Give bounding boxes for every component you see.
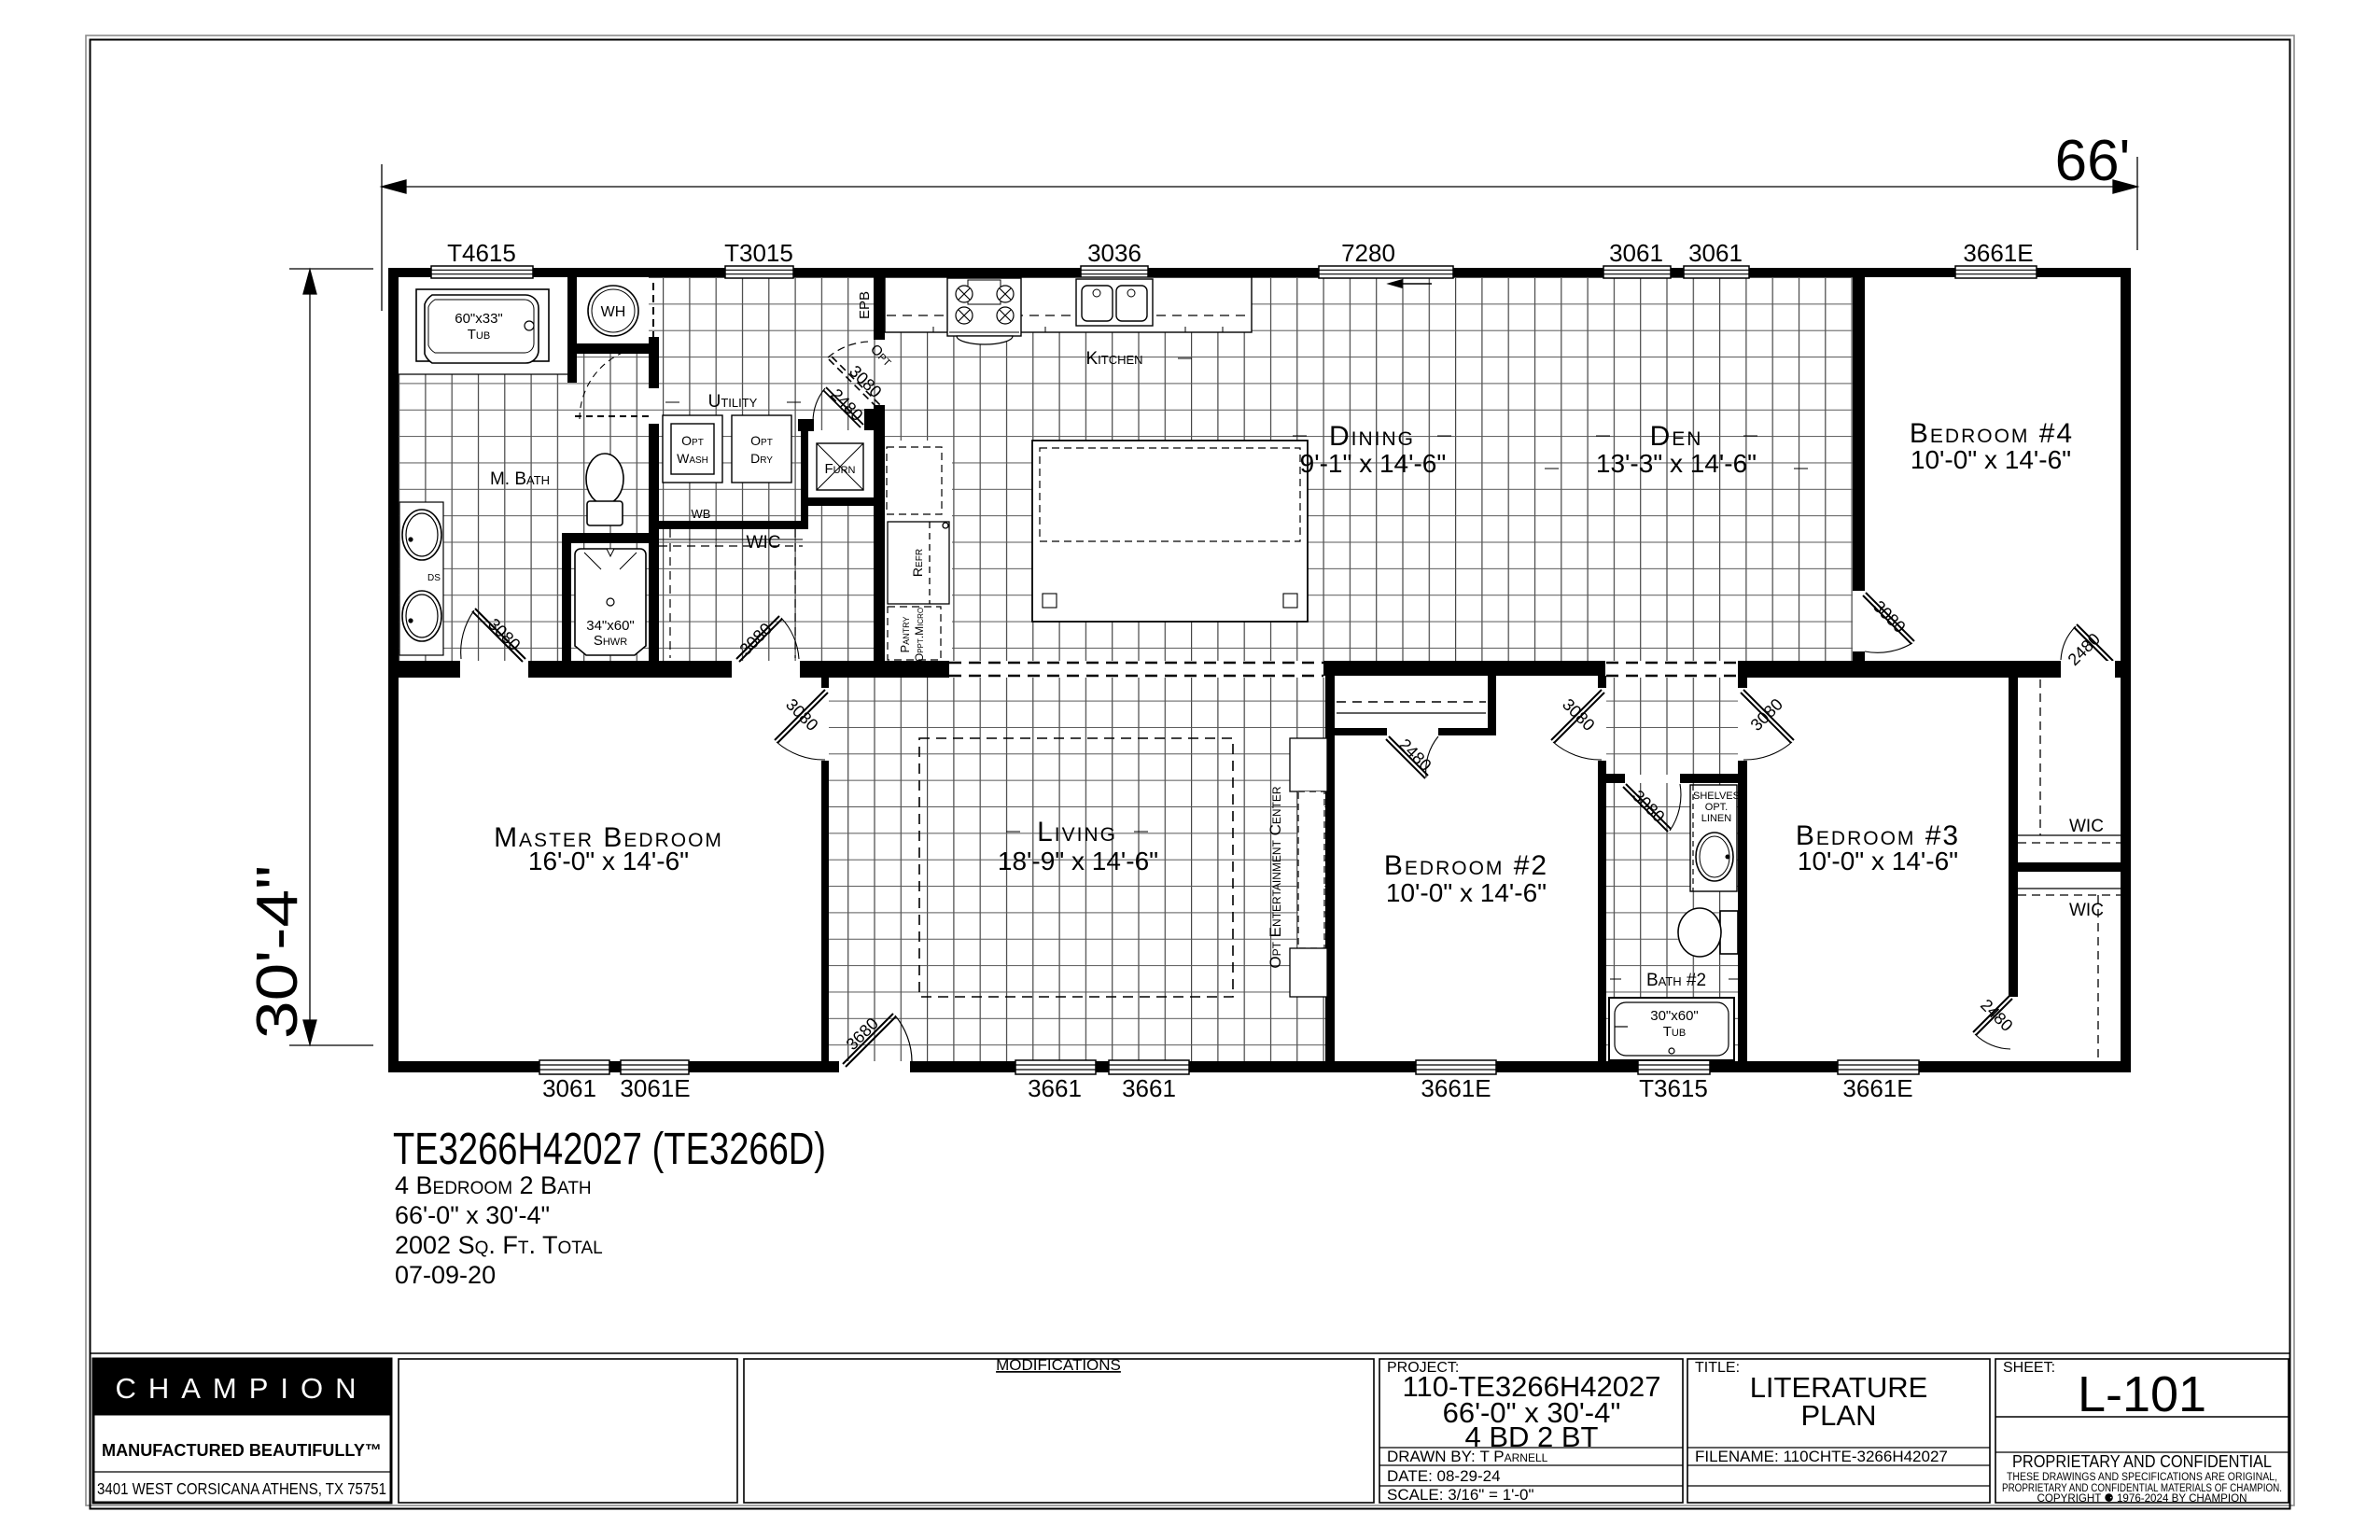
svg-text:Dry: Dry <box>750 451 773 466</box>
svg-text:9'-1" x 14'-6": 9'-1" x 14'-6" <box>1300 449 1447 478</box>
svg-text:MODIFICATIONS: MODIFICATIONS <box>996 1356 1121 1374</box>
svg-text:3661E: 3661E <box>1842 1074 1912 1102</box>
svg-text:SCALE: 3/16" = 1'-0": SCALE: 3/16" = 1'-0" <box>1387 1486 1534 1504</box>
svg-text:OPT.: OPT. <box>1705 802 1728 813</box>
svg-text:3401 WEST CORSICANA ATHENS, TX: 3401 WEST CORSICANA ATHENS, TX 75751 <box>97 1479 386 1498</box>
svg-text:Furn: Furn <box>825 461 856 477</box>
svg-text:18'-9" x 14'-6": 18'-9" x 14'-6" <box>998 847 1158 875</box>
svg-text:60"x33": 60"x33" <box>455 311 503 327</box>
svg-text:3061: 3061 <box>1609 239 1663 267</box>
svg-text:THESE DRAWINGS AND SPECIFICATI: THESE DRAWINGS AND SPECIFICATIONS ARE OR… <box>2007 1472 2277 1483</box>
svg-text:13'-3" x 14'-6": 13'-3" x 14'-6" <box>1596 449 1757 478</box>
svg-text:Opt: Opt <box>750 433 773 448</box>
svg-text:DRAWN BY: T Parnell: DRAWN BY: T Parnell <box>1387 1448 1548 1465</box>
svg-text:T4615: T4615 <box>447 239 516 267</box>
svg-text:Refr: Refr <box>910 549 925 577</box>
svg-text:WB: WB <box>692 507 711 521</box>
svg-text:COPYRIGHT ⚈ 1976-2024 BY CHAMP: COPYRIGHT ⚈ 1976-2024 BY CHAMPION <box>2037 1491 2247 1505</box>
svg-text:M. Bath: M. Bath <box>490 469 550 489</box>
svg-text:Utility: Utility <box>708 392 758 412</box>
svg-text:T3015: T3015 <box>724 239 793 267</box>
svg-text:30'-4": 30'-4" <box>245 865 310 1039</box>
svg-text:3061: 3061 <box>1688 239 1743 267</box>
svg-text:3061: 3061 <box>542 1074 596 1102</box>
svg-text:Dining: Dining <box>1329 421 1415 452</box>
svg-text:3661: 3661 <box>1122 1074 1176 1102</box>
svg-text:DATE: 08-29-24: DATE: 08-29-24 <box>1387 1467 1501 1485</box>
svg-text:FILENAME: 110CHTE-3266H42027: FILENAME: 110CHTE-3266H42027 <box>1695 1448 1948 1465</box>
svg-text:3061E: 3061E <box>620 1074 690 1102</box>
svg-text:SHELVES: SHELVES <box>1693 791 1740 802</box>
svg-text:Opt: Opt <box>681 433 704 448</box>
svg-text:PLAN: PLAN <box>1801 1399 1877 1432</box>
svg-text:PROPRIETARY AND CONFIDENTIAL: PROPRIETARY AND CONFIDENTIAL <box>2012 1452 2272 1471</box>
svg-text:WIC: WIC <box>747 533 781 553</box>
svg-text:SHEET:: SHEET: <box>2003 1360 2055 1376</box>
svg-text:10'-0" x 14'-6": 10'-0" x 14'-6" <box>1386 878 1547 907</box>
svg-text:L-101: L-101 <box>2078 1366 2206 1422</box>
svg-text:3036: 3036 <box>1087 239 1141 267</box>
svg-text:Tub: Tub <box>1663 1024 1686 1040</box>
svg-text:Living: Living <box>1037 817 1117 847</box>
svg-text:16'-0" x 14'-6": 16'-0" x 14'-6" <box>528 847 689 875</box>
svg-text:7280: 7280 <box>1341 239 1395 267</box>
svg-text:34"x60": 34"x60" <box>586 618 635 634</box>
svg-text:2002 Sq. Ft. Total: 2002 Sq. Ft. Total <box>395 1231 603 1259</box>
svg-text:DS: DS <box>427 573 441 583</box>
svg-text:3661: 3661 <box>1028 1074 1082 1102</box>
svg-text:Opt Entertainment Center: Opt Entertainment Center <box>1267 786 1284 969</box>
svg-text:Tub: Tub <box>468 327 490 343</box>
svg-text:CHAMPION: CHAMPION <box>115 1372 368 1405</box>
svg-text:Oppt.Micro: Oppt.Micro <box>913 608 926 662</box>
svg-text:10'-0" x 14'-6": 10'-0" x 14'-6" <box>1911 445 2071 474</box>
svg-text:TITLE:: TITLE: <box>1695 1360 1740 1376</box>
svg-text:WIC: WIC <box>2069 901 2104 920</box>
svg-text:10'-0" x 14'-6": 10'-0" x 14'-6" <box>1798 847 1958 875</box>
svg-text:Den: Den <box>1650 421 1703 452</box>
svg-text:66': 66' <box>2055 129 2131 193</box>
svg-text:3661E: 3661E <box>1421 1074 1491 1102</box>
svg-text:Bedroom #2: Bedroom #2 <box>1384 850 1548 881</box>
svg-text:LINEN: LINEN <box>1701 813 1731 824</box>
svg-text:Bath #2: Bath #2 <box>1646 971 1706 990</box>
svg-text:EPB: EPB <box>857 291 873 319</box>
svg-text:MANUFACTURED BEAUTIFULLY™: MANUFACTURED BEAUTIFULLY™ <box>102 1440 382 1460</box>
svg-text:Shwr: Shwr <box>594 633 627 649</box>
svg-text:Kitchen: Kitchen <box>1085 349 1142 369</box>
svg-text:T3615: T3615 <box>1639 1074 1708 1102</box>
svg-text:TE3266H42027 (TE3266D): TE3266H42027 (TE3266D) <box>393 1125 826 1174</box>
svg-text:WIC: WIC <box>2069 817 2104 836</box>
svg-text:Wash: Wash <box>677 451 708 466</box>
svg-text:66'-0" x 30'-4": 66'-0" x 30'-4" <box>395 1201 550 1229</box>
svg-text:30"x60": 30"x60" <box>1650 1008 1699 1024</box>
svg-text:3661E: 3661E <box>1963 239 2033 267</box>
svg-text:WH: WH <box>601 304 626 320</box>
svg-text:4 Bedroom 2 Bath: 4 Bedroom 2 Bath <box>395 1171 592 1199</box>
svg-text:Pantry: Pantry <box>898 616 912 652</box>
svg-text:07-09-20: 07-09-20 <box>395 1261 496 1289</box>
